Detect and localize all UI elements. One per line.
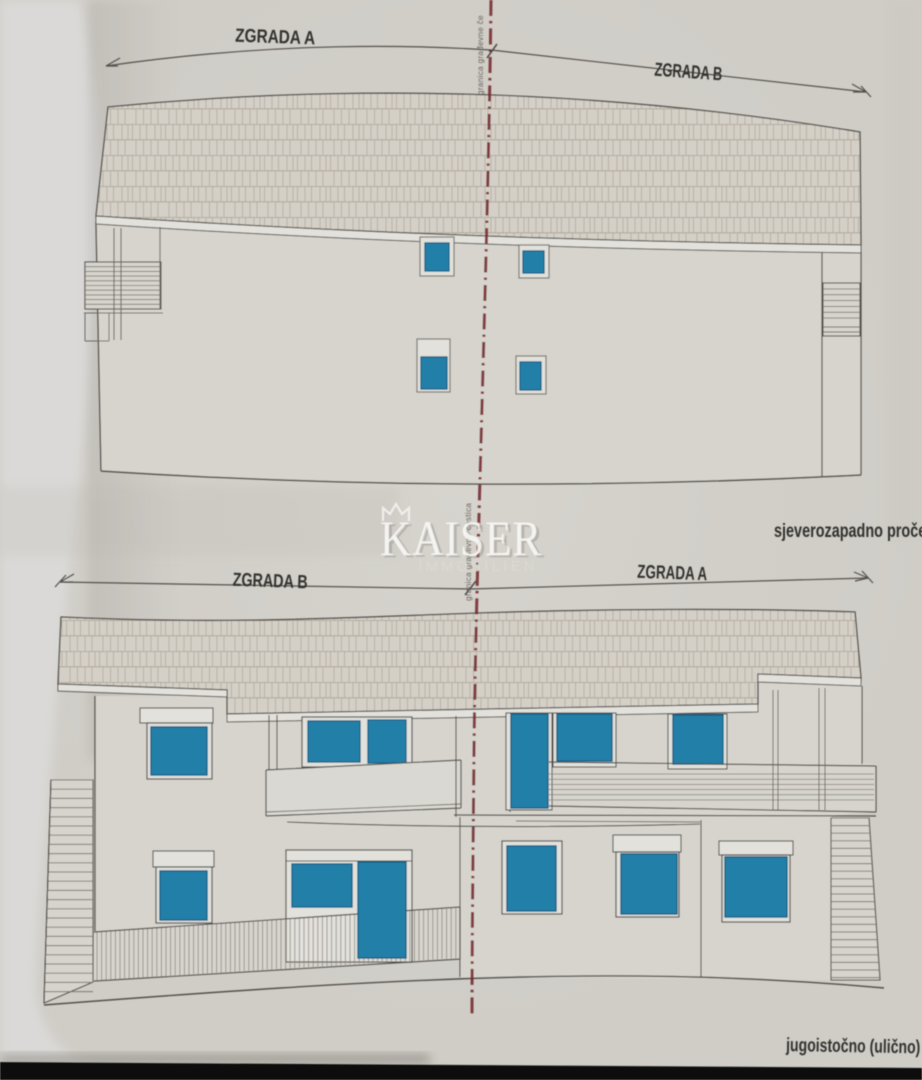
svg-text:granica građevne če: granica građevne če <box>476 15 485 95</box>
svg-text:ZGRADA A: ZGRADA A <box>637 562 708 585</box>
svg-text:ZGRADA B: ZGRADA B <box>232 570 308 594</box>
svg-text:IMMOBILIEN: IMMOBILIEN <box>418 559 537 575</box>
svg-text:jugoistočno (ulično): jugoistočno (ulično) <box>785 1034 920 1058</box>
svg-text:sjeverozapadno pročelje: sjeverozapadno pročelje <box>774 519 922 542</box>
svg-text:ZGRADA A: ZGRADA A <box>235 26 316 50</box>
